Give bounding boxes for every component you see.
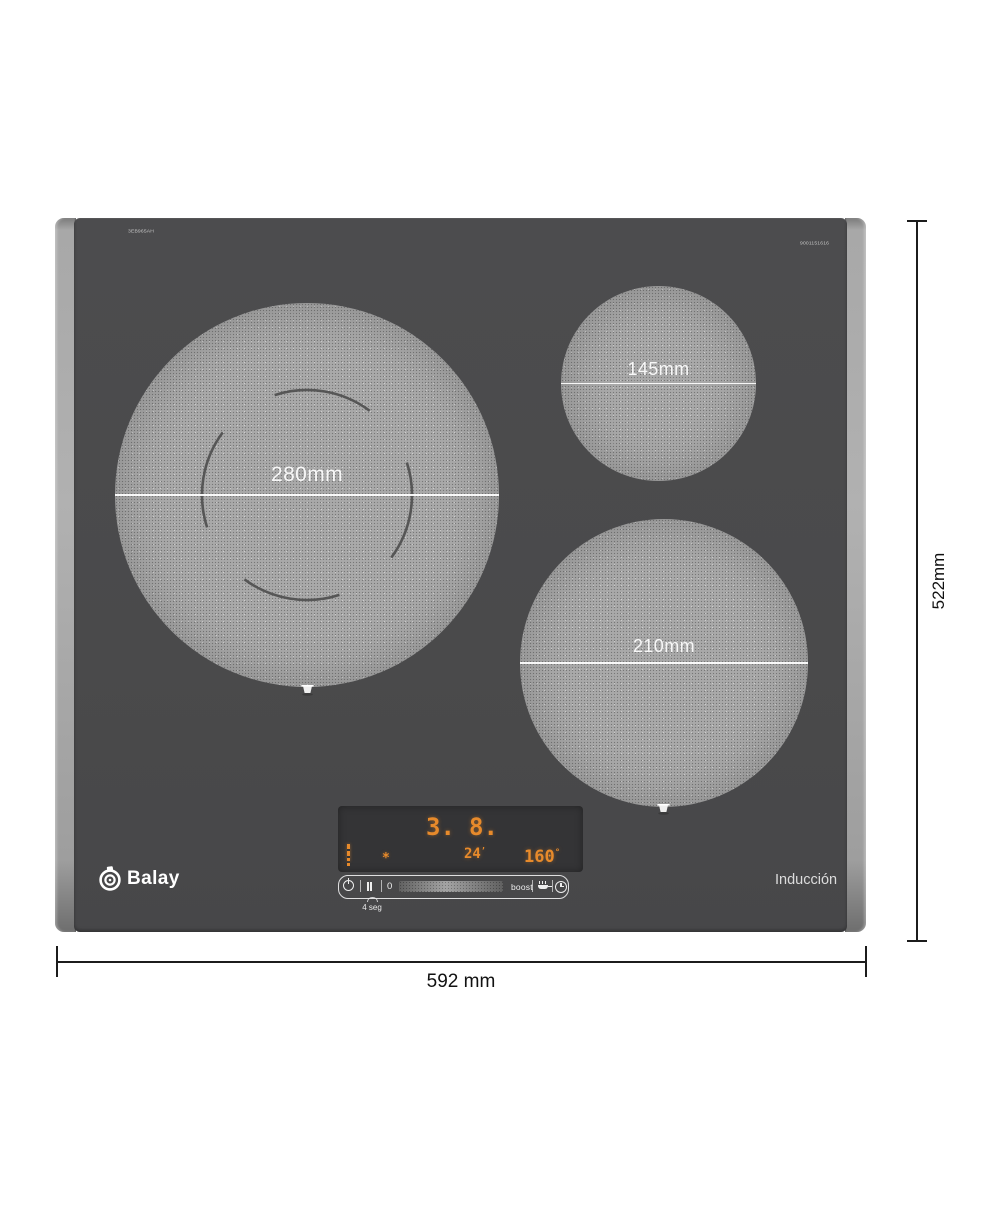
cooking-zone-medium: 210mm bbox=[520, 519, 808, 807]
touch-control-bar: 0 boost bbox=[338, 875, 569, 899]
pan-position-marker-icon bbox=[299, 681, 316, 697]
left-side-trim bbox=[55, 218, 76, 932]
width-dimension-label: 592 mm bbox=[361, 971, 561, 993]
frying-pan-icon bbox=[538, 885, 548, 889]
zone-diameter-label: 145mm bbox=[561, 359, 756, 380]
zone-diameter-line bbox=[520, 662, 808, 664]
timer-display: 24’ bbox=[464, 847, 486, 861]
product-dimension-image: 3EB965AH 9001151616 280mm 145mm bbox=[0, 0, 1000, 1208]
divider bbox=[381, 880, 382, 892]
width-dimension-tick-left bbox=[56, 946, 58, 977]
glass-surface: 3EB965AH 9001151616 280mm 145mm bbox=[74, 218, 847, 932]
timer-mark: ’ bbox=[481, 846, 486, 855]
boost-label: boost bbox=[511, 882, 533, 892]
brand-name: Balay bbox=[127, 868, 180, 890]
height-dimension-tick-top bbox=[907, 220, 927, 222]
right-side-trim bbox=[845, 218, 866, 932]
part-code: 9001151616 bbox=[800, 240, 829, 246]
width-dimension-tick-right bbox=[865, 946, 867, 977]
brand-logo: Balay bbox=[98, 866, 180, 892]
balay-logo-icon bbox=[98, 866, 122, 892]
pause-icon bbox=[367, 882, 372, 891]
hold-hint-label: 4 seg bbox=[350, 903, 394, 912]
cooking-zone-small: 145mm bbox=[561, 286, 756, 481]
zone-diameter-label: 280mm bbox=[115, 463, 499, 487]
press-hold-arc-icon bbox=[367, 897, 378, 902]
zone-diameter-line bbox=[115, 494, 499, 496]
display-panel: 3. 8. 24’ 160° * bbox=[338, 806, 583, 872]
power-slider bbox=[399, 881, 503, 892]
induction-hob: 3EB965AH 9001151616 280mm 145mm bbox=[55, 218, 866, 932]
height-dimension-tick-bottom bbox=[907, 940, 927, 942]
aux-indicator-icon: * bbox=[382, 852, 390, 865]
height-dimension-line bbox=[916, 220, 918, 941]
pan-position-marker-icon bbox=[655, 800, 672, 816]
divider bbox=[360, 880, 361, 892]
induction-label: Inducción bbox=[775, 872, 837, 888]
height-dimension-label: 522mm bbox=[928, 550, 950, 612]
degree-mark: ° bbox=[555, 848, 560, 858]
zone-level-indicator bbox=[347, 844, 350, 861]
divider bbox=[532, 880, 533, 892]
divider bbox=[552, 880, 553, 892]
slider-zero-label: 0 bbox=[387, 881, 392, 892]
zone-diameter-line bbox=[561, 383, 756, 385]
zone-diameter-label: 210mm bbox=[520, 636, 808, 657]
cooking-zone-large: 280mm bbox=[115, 303, 499, 687]
width-dimension-line bbox=[57, 961, 866, 963]
model-code: 3EB965AH bbox=[128, 228, 154, 234]
power-icon bbox=[343, 880, 354, 891]
temperature-display: 160° bbox=[524, 849, 560, 866]
power-level-left: 3. bbox=[426, 815, 455, 839]
timer-clock-icon bbox=[555, 881, 567, 893]
power-level-right: 8. bbox=[469, 815, 498, 839]
